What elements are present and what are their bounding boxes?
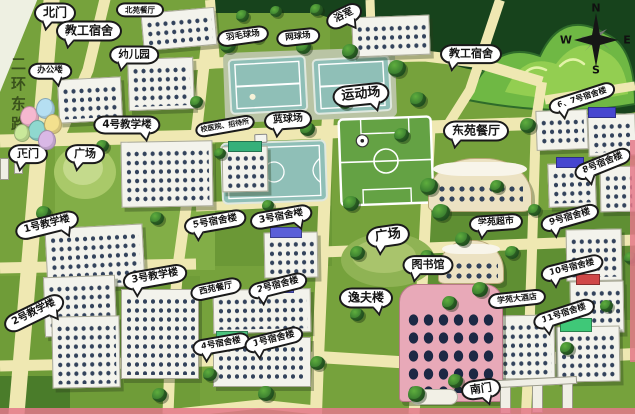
tree-icon: [342, 44, 358, 59]
building-windows: [226, 154, 265, 189]
balloon-icon: [14, 124, 30, 142]
tree-icon: [442, 296, 457, 310]
tree-icon: [350, 246, 365, 260]
label-staff-dorm-east: 教工宿舍: [440, 44, 502, 64]
label-staff-dorm-west: 教工宿舍: [56, 21, 122, 42]
tree-icon: [490, 180, 504, 193]
tree-icon: [350, 308, 364, 321]
tree-icon: [150, 212, 164, 225]
building-windows: [125, 148, 210, 203]
soccer-field-art: [339, 116, 434, 205]
tree-icon: [152, 388, 167, 402]
tree-icon: [455, 232, 470, 246]
building-bath-house: [351, 15, 430, 58]
building-windows: [501, 323, 552, 376]
tree-icon: [388, 60, 406, 77]
building-windows: [145, 15, 213, 47]
building-kindergarten: [127, 57, 195, 111]
building-windows: [437, 184, 523, 206]
building-windows: [131, 65, 190, 107]
label-east-canteen: 东苑餐厅: [443, 121, 509, 142]
balloon-icon: [38, 130, 56, 150]
label-office-building: 办公楼: [28, 63, 72, 80]
building-windows: [268, 240, 315, 275]
tree-icon: [408, 386, 425, 402]
roof-chip: [228, 141, 262, 152]
edge-strip: [630, 140, 635, 362]
tree-icon: [343, 196, 359, 211]
building-teaching-4: [120, 140, 213, 208]
tree-icon: [560, 342, 574, 355]
label-yifu-building: 逸夫楼: [339, 288, 393, 309]
tree-icon: [505, 246, 519, 259]
roof-chip: [576, 274, 600, 285]
compass-n: N: [591, 2, 600, 15]
compass-s: S: [592, 64, 600, 77]
building-windows: [125, 297, 195, 375]
label-plaza-west: 广场: [65, 144, 105, 164]
building-windows: [356, 23, 427, 53]
roof-chip: [588, 107, 616, 118]
label-library: 图书馆: [403, 255, 454, 275]
tree-icon: [236, 10, 249, 22]
tree-icon: [394, 128, 409, 142]
tree-icon: [410, 92, 426, 107]
building-teaching-3b: [121, 289, 199, 379]
label-basketball-court: 蓝球场: [263, 109, 312, 131]
tree-icon: [310, 356, 325, 370]
tree-icon: [190, 96, 203, 108]
compass-w: W: [560, 34, 572, 47]
building-windows: [540, 117, 585, 147]
building-dorm-5: [222, 146, 269, 193]
edge-strip: [0, 408, 635, 414]
main-gate-structure: [0, 158, 9, 180]
tree-icon: [420, 178, 438, 195]
tree-icon: [258, 386, 274, 401]
label-north-canteen: 北苑餐厅: [116, 2, 164, 17]
tree-icon: [310, 4, 323, 16]
building-teaching-2: [51, 315, 120, 388]
tree-icon: [472, 282, 488, 297]
label-kindergarten: 幼儿园: [109, 45, 159, 64]
badminton-court-art: [229, 56, 308, 114]
tree-icon: [432, 204, 450, 221]
building-windows: [56, 323, 117, 384]
building-windows: [61, 85, 119, 120]
tree-icon: [203, 368, 217, 381]
tree-icon: [448, 374, 463, 388]
tree-icon: [528, 204, 541, 216]
roof-chip: [270, 227, 302, 238]
compass-e: E: [623, 34, 631, 47]
building-windows: [560, 334, 617, 379]
tree-icon: [520, 118, 536, 133]
building-dorm-3: [264, 232, 319, 279]
building-windows: [604, 174, 633, 208]
tree-icon: [600, 300, 613, 312]
label-teaching-4: 4号教学楼: [93, 115, 160, 134]
campus-map: N W E S 二环东路 北门北苑餐厅教工宿舍幼儿园办公楼羽毛球场网球场浴室教工…: [0, 0, 635, 414]
